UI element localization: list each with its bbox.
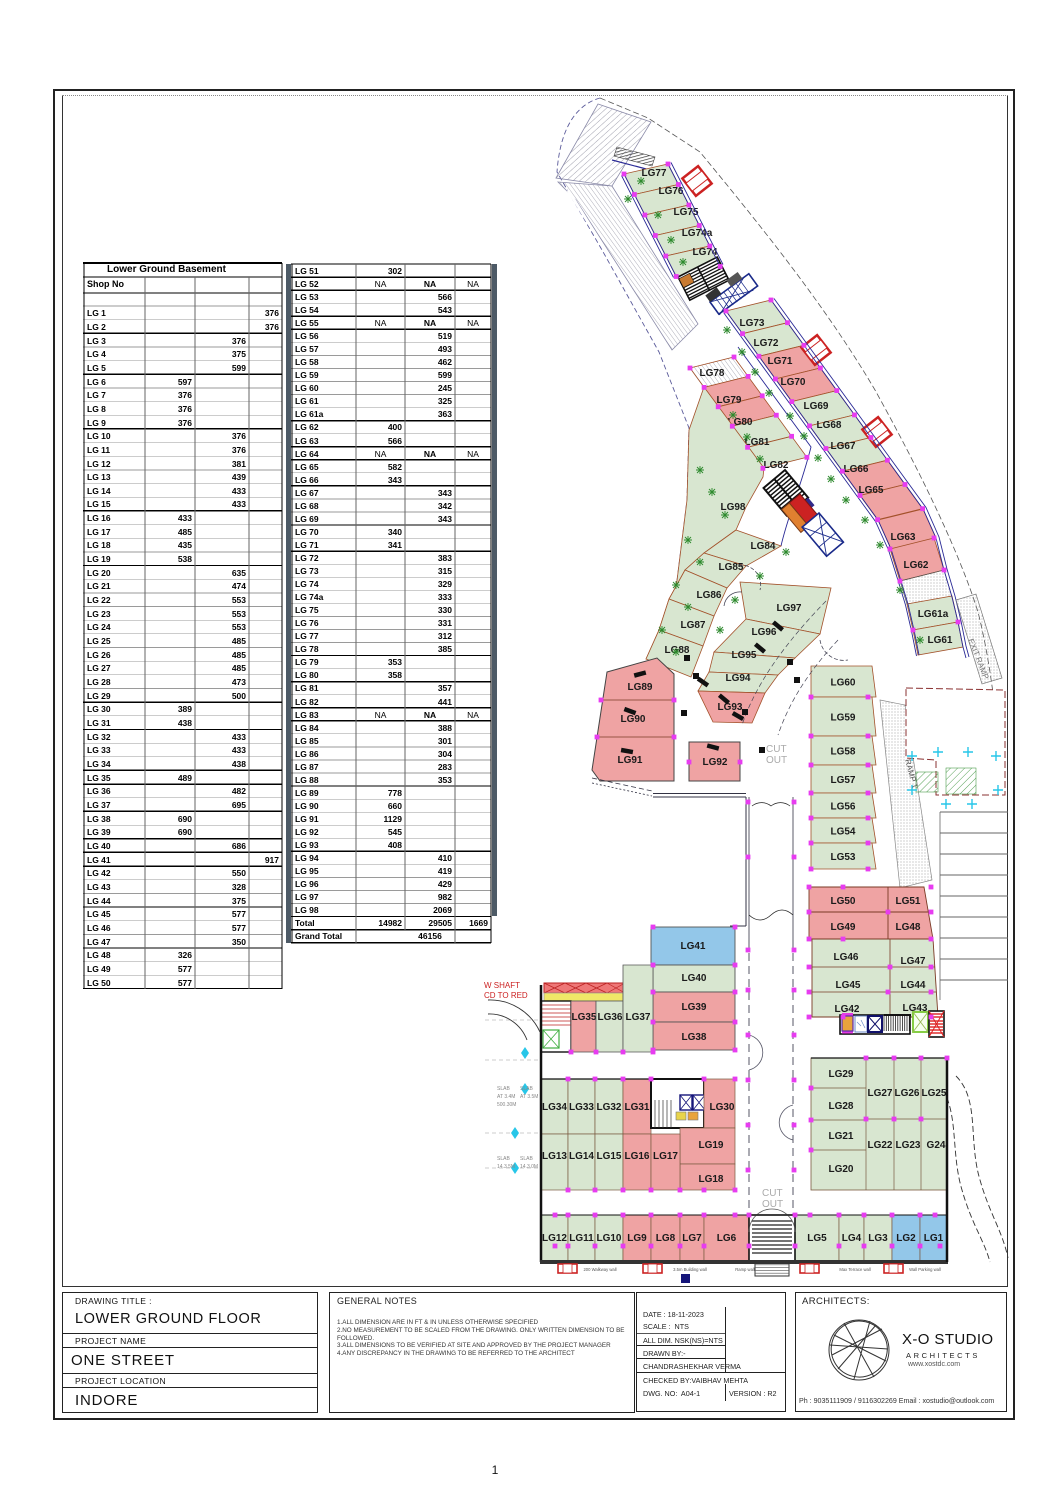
svg-text:14.3.0M: 14.3.0M [520,1164,538,1170]
svg-text:LG38: LG38 [681,1032,706,1043]
svg-text:14.3.5M: 14.3.5M [497,1164,515,1170]
svg-text:LG22: LG22 [867,1140,892,1151]
svg-text:OUT: OUT [766,755,787,766]
svg-text:LG92: LG92 [702,757,727,768]
svg-text:LG9: LG9 [627,1233,647,1244]
svg-text:500.30M: 500.30M [497,1102,516,1108]
svg-text:W SHAFT: W SHAFT [484,981,520,990]
svg-text:LG71: LG71 [767,356,792,367]
svg-text:LG91: LG91 [617,755,642,766]
svg-text:LG79: LG79 [716,395,741,406]
svg-text:LG47: LG47 [900,956,925,967]
svg-text:LG28: LG28 [828,1101,853,1112]
svg-text:LG4: LG4 [842,1233,862,1244]
svg-text:LG36: LG36 [597,1012,622,1023]
svg-text:LG56: LG56 [830,802,855,813]
svg-text:LG50: LG50 [830,896,855,907]
svg-text:LG61a: LG61a [918,609,949,620]
svg-text:LG30: LG30 [709,1102,734,1113]
svg-text:LG21: LG21 [828,1131,853,1142]
svg-text:LG26: LG26 [894,1088,919,1099]
svg-text:LG69: LG69 [803,401,828,412]
svg-text:LG18: LG18 [698,1174,723,1185]
svg-text:LG90: LG90 [620,714,645,725]
svg-text:LG11: LG11 [569,1233,594,1244]
svg-text:LG74: LG74 [692,247,717,258]
svg-text:LG19: LG19 [698,1140,723,1151]
svg-text:LG25: LG25 [921,1088,946,1099]
svg-text:LG51: LG51 [895,896,920,907]
svg-text:G24: G24 [927,1140,946,1151]
svg-text:LG17: LG17 [653,1151,678,1162]
svg-text:LG95: LG95 [731,650,756,661]
svg-text:CUT: CUT [762,1188,783,1199]
svg-text:LG37: LG37 [625,1012,650,1023]
svg-text:LG85: LG85 [718,562,743,573]
svg-text:200 Walkway wall: 200 Walkway wall [583,1267,616,1272]
svg-text:LG3: LG3 [868,1233,888,1244]
svg-text:LG74a: LG74a [682,228,713,239]
svg-text:LG63: LG63 [890,532,915,543]
svg-text:LG53: LG53 [830,852,855,863]
svg-text:SLAB: SLAB [520,1156,533,1162]
svg-text:LG61: LG61 [927,635,952,646]
svg-text:LG33: LG33 [569,1102,594,1113]
svg-text:3.5m Building wall: 3.5m Building wall [673,1267,707,1272]
svg-text:AT 3.5M: AT 3.5M [520,1094,538,1100]
svg-text:SLAB: SLAB [497,1156,510,1162]
svg-text:LG7: LG7 [682,1233,702,1244]
svg-text:LG49: LG49 [830,922,855,933]
svg-text:LG15: LG15 [596,1151,621,1162]
svg-text:LG93: LG93 [717,702,742,713]
svg-text:LG46: LG46 [833,952,858,963]
svg-text:LG57: LG57 [830,775,855,786]
svg-text:LG72: LG72 [753,338,778,349]
svg-text:LG77: LG77 [641,168,666,179]
svg-text:LG66: LG66 [843,464,868,475]
svg-text:LG14: LG14 [569,1151,594,1162]
svg-text:LG20: LG20 [828,1164,853,1175]
svg-text:LG8: LG8 [656,1233,676,1244]
svg-text:LG39: LG39 [681,1002,706,1013]
svg-text:LG27: LG27 [867,1088,892,1099]
svg-text:LG54: LG54 [830,827,855,838]
svg-text:SLAB: SLAB [497,1086,510,1092]
svg-text:LG78: LG78 [699,368,724,379]
svg-text:LG12: LG12 [542,1233,567,1244]
svg-text:LG48: LG48 [895,922,920,933]
svg-text:LG5: LG5 [807,1233,827,1244]
svg-text:OUT: OUT [762,1199,783,1210]
svg-text:LG60: LG60 [830,678,855,689]
svg-text:LG89: LG89 [627,682,652,693]
svg-text:LG59: LG59 [830,713,855,724]
svg-text:LG62: LG62 [903,560,928,571]
svg-text:LG70: LG70 [780,377,805,388]
svg-text:LG68: LG68 [816,420,841,431]
svg-text:LG34: LG34 [542,1102,567,1113]
svg-text:LG29: LG29 [828,1069,853,1080]
svg-text:LG98: LG98 [720,502,745,513]
svg-text:LG67: LG67 [830,441,855,452]
svg-text:LG40: LG40 [681,973,706,984]
svg-text:LG13: LG13 [542,1151,567,1162]
svg-text:LG10: LG10 [596,1233,621,1244]
svg-text:LG16: LG16 [624,1151,649,1162]
svg-text:CUT: CUT [766,744,787,755]
svg-text:LG97: LG97 [776,603,801,614]
svg-text:LG6: LG6 [717,1233,737,1244]
svg-text:LG35: LG35 [571,1012,596,1023]
svg-text:LG45: LG45 [835,980,860,991]
svg-text:LG41: LG41 [680,941,705,952]
svg-text:LG2: LG2 [896,1233,916,1244]
svg-text:LG86: LG86 [696,590,721,601]
svg-text:LG58: LG58 [830,747,855,758]
svg-text:LG1: LG1 [924,1233,944,1244]
svg-text:Wall Parking wall: Wall Parking wall [909,1267,941,1272]
svg-text:LG32: LG32 [596,1102,621,1113]
svg-text:LG73: LG73 [739,318,764,329]
svg-text:LG94: LG94 [725,673,750,684]
svg-text:CD TO RED: CD TO RED [484,991,528,1000]
svg-text:LG44: LG44 [900,980,925,991]
svg-text:LG84: LG84 [750,541,775,552]
svg-text:Ramp wall: Ramp wall [735,1267,755,1272]
svg-text:SLAB: SLAB [520,1086,533,1092]
svg-text:LG23: LG23 [895,1140,920,1151]
svg-text:LG96: LG96 [751,627,776,638]
svg-text:Max Terrace wall: Max Terrace wall [839,1267,870,1272]
svg-text:LG87: LG87 [680,620,705,631]
svg-text:LG31: LG31 [624,1102,649,1113]
svg-text:AT 3.4M: AT 3.4M [497,1094,515,1100]
